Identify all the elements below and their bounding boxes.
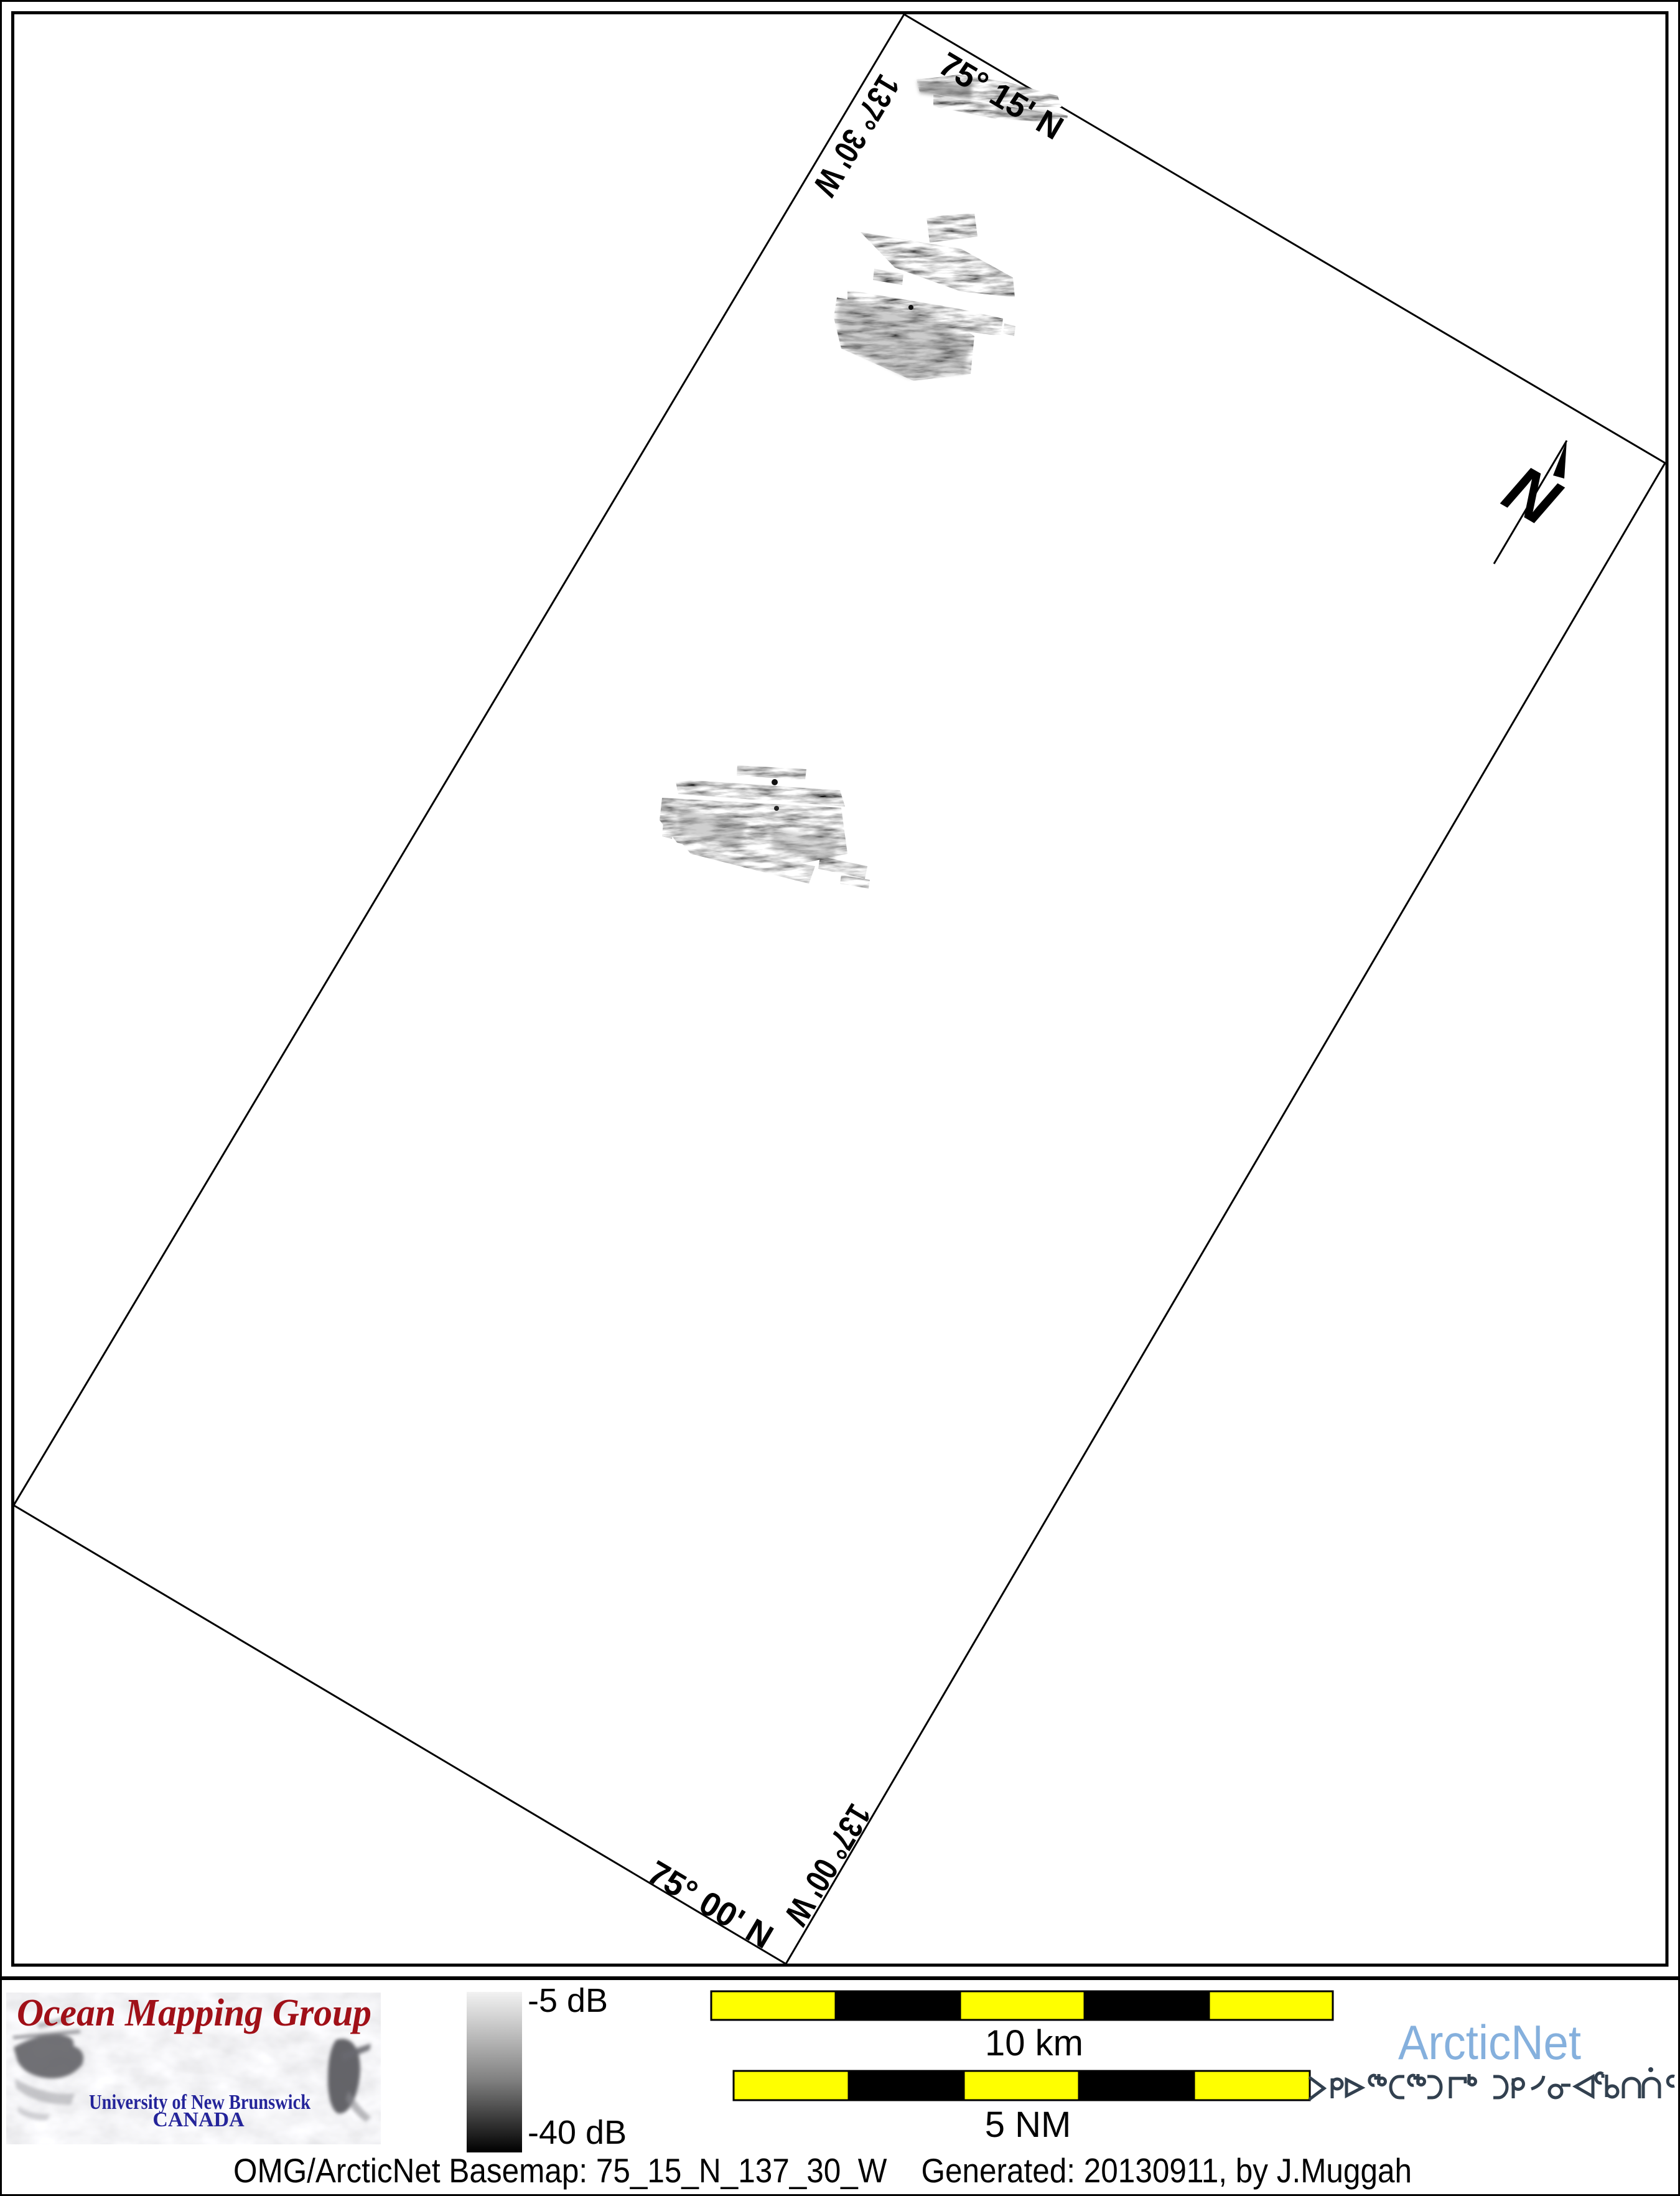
svg-text:-5 dB: -5 dB [528, 1982, 608, 2019]
svg-text:ArcticNet: ArcticNet [1398, 2015, 1581, 2070]
svg-text:10 km: 10 km [985, 2023, 1083, 2063]
svg-text:CANADA: CANADA [152, 2108, 245, 2131]
svg-text:5 NM: 5 NM [985, 2105, 1071, 2145]
svg-text:-40 dB: -40 dB [528, 2114, 627, 2151]
svg-text:Ocean Mapping Group: Ocean Mapping Group [17, 1992, 371, 2034]
svg-text:OMG/ArcticNet Basemap: 75_15_N: OMG/ArcticNet Basemap: 75_15_N_137_30_W … [233, 2151, 1412, 2190]
